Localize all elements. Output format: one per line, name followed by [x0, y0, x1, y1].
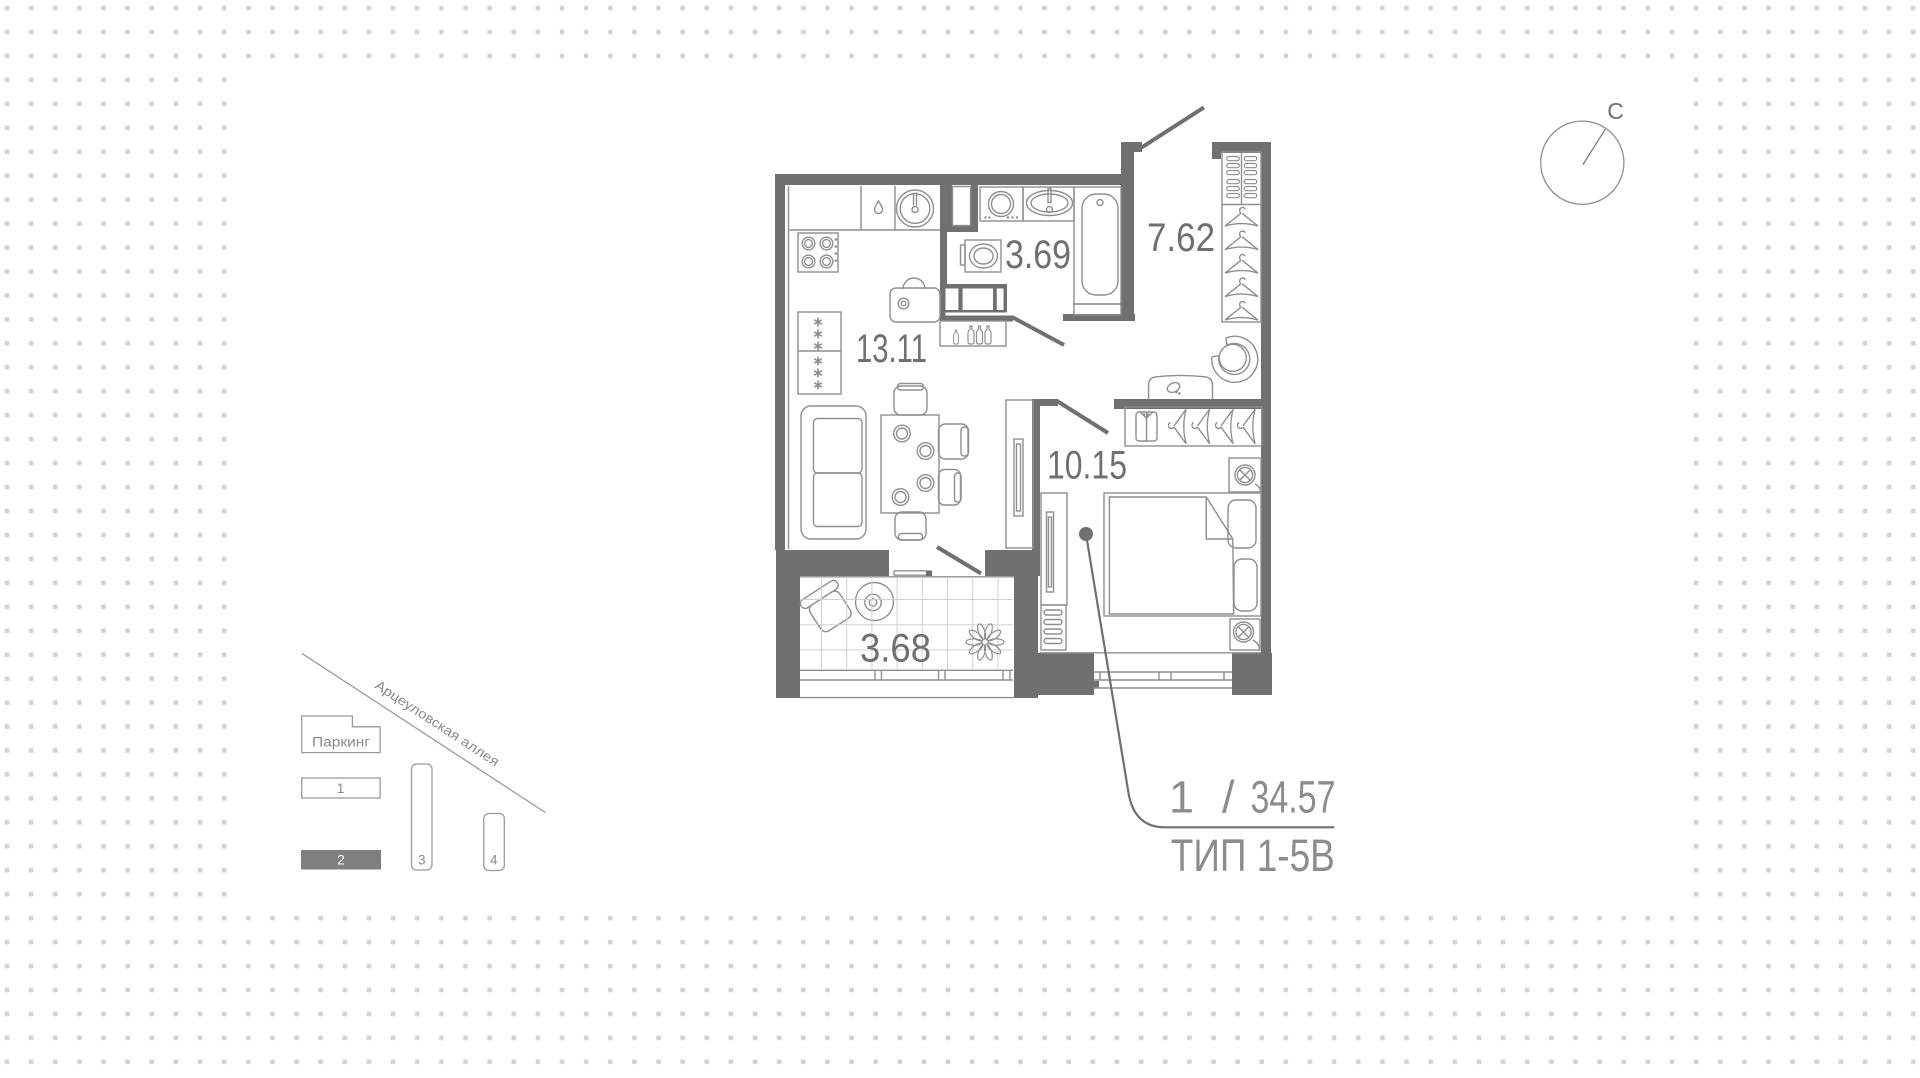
svg-text:2: 2 [337, 853, 345, 868]
svg-text:3.68: 3.68 [860, 627, 931, 671]
svg-text:ТИП 1-5В: ТИП 1-5В [1171, 830, 1335, 881]
svg-text:1: 1 [1169, 772, 1194, 823]
svg-text:13.11: 13.11 [856, 327, 927, 371]
svg-text:1: 1 [337, 781, 345, 796]
svg-text:34.57: 34.57 [1251, 772, 1336, 823]
svg-text:10.15: 10.15 [1047, 444, 1127, 488]
svg-text:4: 4 [490, 853, 498, 868]
svg-text:С: С [1607, 98, 1624, 124]
svg-text:3.69: 3.69 [1005, 233, 1071, 277]
svg-text:7.62: 7.62 [1147, 216, 1215, 260]
svg-text:Паркинг: Паркинг [312, 735, 370, 750]
svg-text:3: 3 [418, 853, 426, 868]
svg-text:/: / [1222, 772, 1235, 823]
